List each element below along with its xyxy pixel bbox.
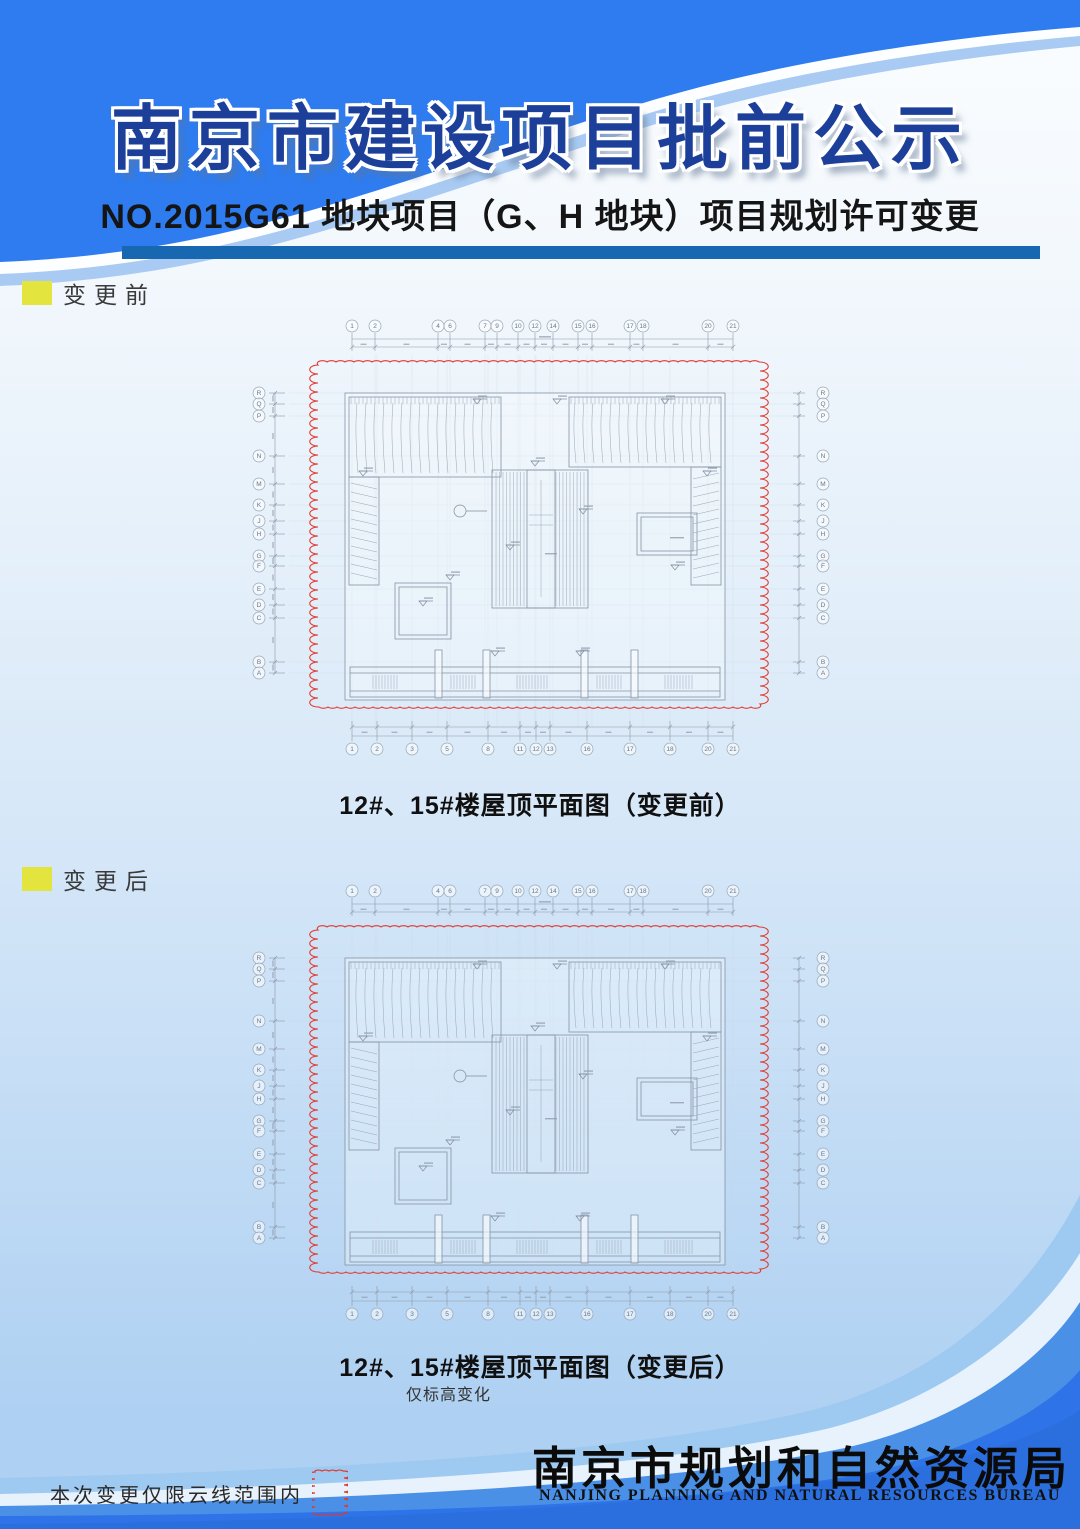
svg-text:N: N (821, 453, 826, 460)
svg-text:E: E (257, 586, 262, 593)
svg-text:A: A (821, 670, 826, 677)
svg-text:2: 2 (375, 746, 379, 753)
svg-text:R: R (821, 390, 826, 397)
svg-text:J: J (821, 1083, 824, 1090)
svg-text:21: 21 (729, 1311, 737, 1318)
svg-text:18: 18 (666, 746, 674, 753)
svg-text:R: R (821, 955, 826, 962)
subtitle-underline-bar (122, 246, 1040, 259)
svg-text:Q: Q (820, 401, 825, 408)
svg-text:11: 11 (517, 1311, 524, 1318)
svg-text:C: C (821, 615, 826, 622)
svg-text:17: 17 (626, 323, 634, 330)
svg-text:15: 15 (574, 323, 582, 330)
yellow-marker-icon (22, 867, 52, 891)
svg-text:B: B (257, 1224, 261, 1231)
grid-bubbles-top: 124679101214151617182021 (346, 885, 739, 897)
svg-text:M: M (820, 481, 825, 488)
svg-text:F: F (821, 563, 825, 570)
svg-text:N: N (257, 1018, 262, 1025)
svg-text:17: 17 (626, 746, 634, 753)
svg-text:B: B (257, 659, 261, 666)
svg-text:12: 12 (531, 323, 539, 330)
svg-text:20: 20 (704, 1311, 712, 1318)
svg-text:21: 21 (729, 888, 737, 895)
svg-text:G: G (820, 1118, 825, 1125)
page-title: 南京市建设项目批前公示 (0, 82, 1080, 184)
grid-bubbles-bottom: 123581112131617182021 (346, 743, 739, 755)
svg-text:17: 17 (626, 888, 634, 895)
svg-text:B: B (821, 659, 825, 666)
svg-text:11: 11 (517, 746, 524, 753)
svg-text:H: H (257, 531, 262, 538)
svg-text:R: R (257, 955, 262, 962)
svg-text:2: 2 (375, 1311, 379, 1318)
svg-text:9: 9 (495, 323, 499, 330)
svg-text:E: E (257, 1151, 262, 1158)
svg-text:G: G (256, 1118, 261, 1125)
svg-text:D: D (821, 1167, 826, 1174)
svg-text:G: G (256, 553, 261, 560)
svg-text:15: 15 (574, 888, 582, 895)
svg-text:M: M (820, 1046, 825, 1053)
svg-text:8: 8 (486, 1311, 490, 1318)
grid-bubbles-left: RQPNMKJHGFEDCBA (253, 952, 265, 1244)
svg-text:A: A (257, 670, 262, 677)
svg-text:H: H (257, 1096, 262, 1103)
svg-text:H: H (821, 531, 826, 538)
svg-text:K: K (821, 502, 826, 509)
section-label-before-text: 变更前 (63, 276, 156, 310)
floor-plan-after-drawing: 1246791012141516171820211235811121316171… (245, 880, 845, 1340)
svg-text:10: 10 (514, 888, 522, 895)
svg-text:G: G (820, 553, 825, 560)
svg-text:13: 13 (546, 1311, 554, 1318)
svg-text:P: P (257, 978, 261, 985)
svg-text:Q: Q (256, 401, 261, 408)
svg-text:R: R (257, 390, 262, 397)
svg-text:7: 7 (483, 888, 487, 895)
section-label-after-text: 变更后 (63, 862, 156, 896)
svg-text:P: P (821, 413, 825, 420)
svg-text:K: K (821, 1067, 826, 1074)
svg-text:N: N (821, 1018, 826, 1025)
svg-text:9: 9 (495, 888, 499, 895)
svg-text:J: J (257, 518, 260, 525)
svg-text:M: M (256, 1046, 261, 1053)
svg-text:K: K (257, 502, 262, 509)
svg-text:1: 1 (350, 323, 354, 330)
svg-text:P: P (821, 978, 825, 985)
svg-text:14: 14 (549, 323, 557, 330)
grid-bubbles-left: RQPNMKJHGFEDCBA (253, 387, 265, 679)
svg-text:16: 16 (583, 1311, 591, 1318)
section-label-before: 变更前 (22, 276, 156, 310)
svg-text:12: 12 (532, 746, 540, 753)
page-subtitle: NO.2015G61 地块项目（G、H 地块）项目规划许可变更 (0, 189, 1080, 238)
svg-text:12: 12 (531, 888, 539, 895)
svg-text:4: 4 (436, 888, 440, 895)
svg-text:17: 17 (626, 1311, 634, 1318)
svg-text:8: 8 (486, 746, 490, 753)
svg-text:D: D (257, 602, 262, 609)
svg-text:F: F (821, 1128, 825, 1135)
svg-text:3: 3 (410, 746, 414, 753)
svg-text:18: 18 (666, 1311, 674, 1318)
svg-text:M: M (256, 481, 261, 488)
svg-text:2: 2 (373, 323, 377, 330)
svg-text:C: C (257, 1180, 262, 1187)
svg-text:C: C (821, 1180, 826, 1187)
svg-text:E: E (821, 1151, 826, 1158)
svg-text:Q: Q (820, 966, 825, 973)
agency-name-en: NANJING PLANNING AND NATURAL RESOURCES B… (532, 1487, 1068, 1505)
svg-text:Q: Q (256, 966, 261, 973)
caption-after-note: 仅标高变化 (406, 1381, 491, 1405)
revision-scope-note: 本次变更仅限云线范围内 (50, 1468, 348, 1518)
grid-bubbles-top: 124679101214151617182021 (346, 320, 739, 332)
svg-text:16: 16 (588, 888, 596, 895)
svg-text:21: 21 (729, 746, 737, 753)
caption-after: 12#、15#楼屋顶平面图（变更后） (0, 1348, 1080, 1384)
svg-text:7: 7 (483, 323, 487, 330)
svg-text:20: 20 (704, 888, 712, 895)
caption-before: 12#、15#楼屋顶平面图（变更前） (0, 786, 1080, 822)
svg-text:20: 20 (704, 323, 712, 330)
section-label-after: 变更后 (22, 862, 156, 896)
grid-bubbles-bottom: 123581112131617182021 (346, 1308, 739, 1320)
public-notice-poster: 南京市建设项目批前公示 NO.2015G61 地块项目（G、H 地块）项目规划许… (0, 0, 1080, 1529)
svg-text:18: 18 (639, 323, 647, 330)
svg-text:21: 21 (729, 323, 737, 330)
svg-text:14: 14 (549, 888, 557, 895)
svg-text:3: 3 (410, 1311, 414, 1318)
svg-text:1: 1 (350, 888, 354, 895)
grid-bubbles-right: RQPNMKJHGFEDCBA (817, 952, 829, 1244)
grid-bubbles-right: RQPNMKJHGFEDCBA (817, 387, 829, 679)
revision-scope-note-text: 本次变更仅限云线范围内 (50, 1479, 303, 1508)
svg-text:H: H (821, 1096, 826, 1103)
svg-text:2: 2 (373, 888, 377, 895)
svg-text:K: K (257, 1067, 262, 1074)
svg-text:A: A (821, 1235, 826, 1242)
svg-text:16: 16 (583, 746, 591, 753)
svg-text:A: A (257, 1235, 262, 1242)
svg-text:6: 6 (448, 888, 452, 895)
floor-plan-before-drawing: 1246791012141516171820211235811121316171… (245, 315, 845, 775)
svg-text:6: 6 (448, 323, 452, 330)
building-outline (345, 958, 725, 1265)
svg-text:12: 12 (532, 1311, 540, 1318)
svg-text:D: D (821, 602, 826, 609)
revision-cloud-icon (312, 1468, 348, 1518)
svg-text:D: D (257, 1167, 262, 1174)
svg-text:N: N (257, 453, 262, 460)
svg-text:C: C (257, 615, 262, 622)
svg-text:13: 13 (546, 746, 554, 753)
building-outline (345, 393, 725, 700)
svg-text:1: 1 (350, 746, 354, 753)
svg-text:16: 16 (588, 323, 596, 330)
svg-text:1: 1 (350, 1311, 354, 1318)
svg-text:5: 5 (445, 1311, 449, 1318)
svg-text:10: 10 (514, 323, 522, 330)
svg-text:18: 18 (639, 888, 647, 895)
svg-text:4: 4 (436, 323, 440, 330)
svg-text:J: J (821, 518, 824, 525)
svg-text:E: E (821, 586, 826, 593)
svg-text:P: P (257, 413, 261, 420)
svg-text:B: B (821, 1224, 825, 1231)
svg-text:F: F (257, 1128, 261, 1135)
yellow-marker-icon (22, 281, 52, 305)
svg-text:F: F (257, 563, 261, 570)
svg-text:5: 5 (445, 746, 449, 753)
svg-text:20: 20 (704, 746, 712, 753)
svg-text:J: J (257, 1083, 260, 1090)
